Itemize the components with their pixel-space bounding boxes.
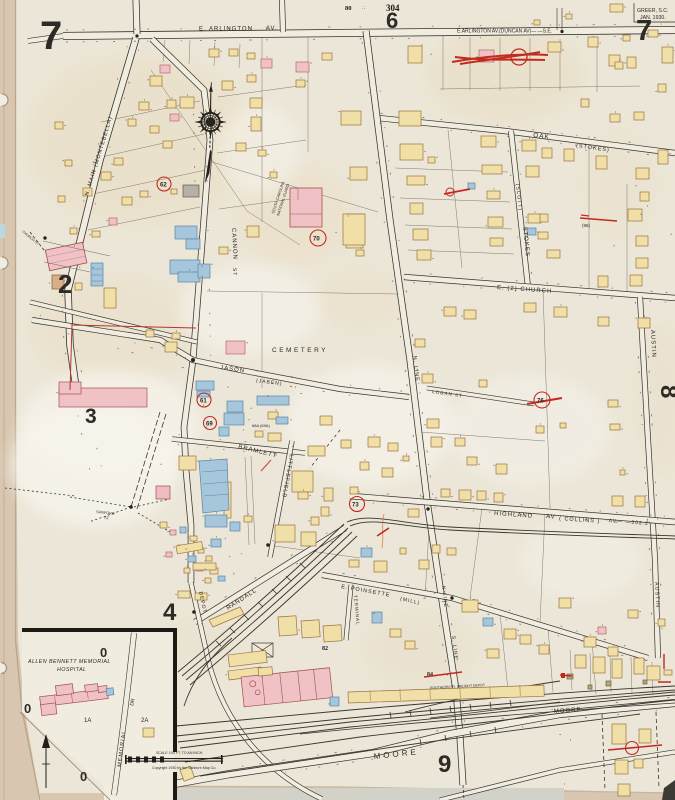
svg-text:AV: AV	[546, 514, 556, 521]
svg-text:GREER, S.C.: GREER, S.C.	[637, 8, 668, 14]
svg-text:1A: 1A	[84, 718, 91, 724]
svg-text:2: 2	[58, 269, 72, 299]
svg-text:AV.: AV.	[266, 26, 278, 32]
svg-text:7: 7	[40, 14, 62, 58]
svg-text:82: 82	[322, 646, 328, 652]
svg-text:0: 0	[24, 701, 31, 716]
svg-text:0: 0	[100, 645, 107, 660]
svg-text:N: N	[208, 119, 213, 127]
svg-text:76: 76	[537, 399, 544, 405]
svg-text:3: 3	[85, 405, 97, 428]
svg-text:E. ARLINGTON: E. ARLINGTON	[199, 27, 253, 33]
svg-text:E.ARLINGTON AV.(DUNCAN AV)— —S: E.ARLINGTON AV.(DUNCAN AV)— —S.E.	[457, 29, 552, 35]
svg-text:69: 69	[206, 422, 213, 428]
svg-text:70: 70	[313, 237, 320, 243]
svg-text:ST.: ST.	[104, 516, 110, 521]
svg-text:(98): (98)	[582, 223, 591, 228]
svg-text:61: 61	[200, 399, 207, 405]
svg-text:4: 4	[163, 599, 177, 626]
svg-text:SCALE 100 FT. TO AN INCH.: SCALE 100 FT. TO AN INCH.	[156, 751, 203, 755]
svg-text:73: 73	[352, 503, 359, 509]
svg-text:ST: ST	[231, 268, 237, 277]
svg-text:HOSPITAL: HOSPITAL	[57, 667, 86, 673]
svg-text:∴: ∴	[362, 5, 365, 11]
svg-text:ALLEN BENNETT MEMORIAL: ALLEN BENNETT MEMORIAL	[27, 659, 111, 665]
svg-text:7: 7	[636, 15, 652, 47]
svg-text:2A: 2A	[141, 718, 148, 724]
svg-text:6: 6	[386, 8, 398, 33]
svg-text:CEMETERY: CEMETERY	[272, 347, 328, 354]
svg-text:9: 9	[438, 751, 451, 778]
svg-text:8: 8	[655, 385, 675, 398]
svg-text:0: 0	[80, 769, 87, 784]
svg-text:Copyright 1930 by the Sanborn: Copyright 1930 by the Sanborn Map Co.	[152, 766, 216, 770]
svg-text:80: 80	[345, 5, 352, 12]
svg-text:62: 62	[160, 183, 167, 189]
svg-text:68A (69A): 68A (69A)	[252, 423, 270, 428]
